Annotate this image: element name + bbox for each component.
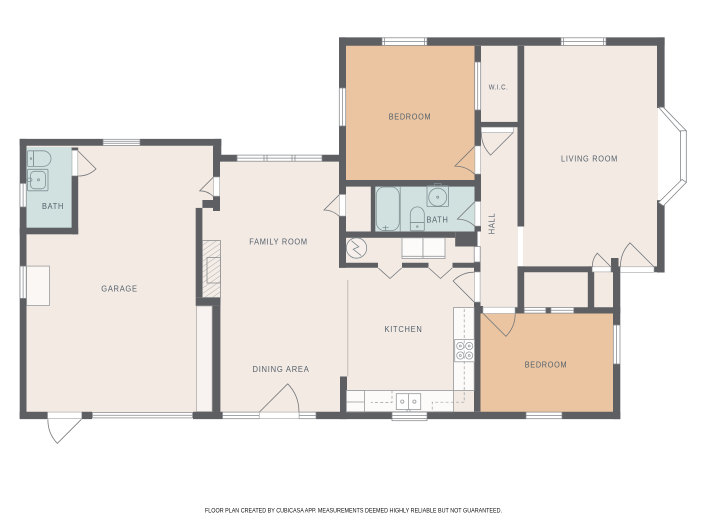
svg-text:HALL: HALL — [487, 213, 497, 235]
svg-text:DINING AREA: DINING AREA — [253, 364, 310, 374]
svg-text:FAMILY ROOM: FAMILY ROOM — [249, 237, 308, 247]
svg-text:GARAGE: GARAGE — [101, 284, 138, 294]
svg-text:FLOOR PLAN CREATED BY CUBICASA: FLOOR PLAN CREATED BY CUBICASA APP. MEAS… — [205, 508, 502, 515]
svg-text:KITCHEN: KITCHEN — [385, 324, 423, 334]
svg-text:BEDROOM: BEDROOM — [525, 360, 568, 370]
svg-text:W.I.C.: W.I.C. — [489, 83, 509, 92]
svg-text:BEDROOM: BEDROOM — [389, 112, 432, 122]
svg-text:BATH: BATH — [427, 215, 449, 225]
svg-text:LIVING ROOM: LIVING ROOM — [561, 154, 618, 164]
svg-text:BATH: BATH — [42, 201, 64, 211]
